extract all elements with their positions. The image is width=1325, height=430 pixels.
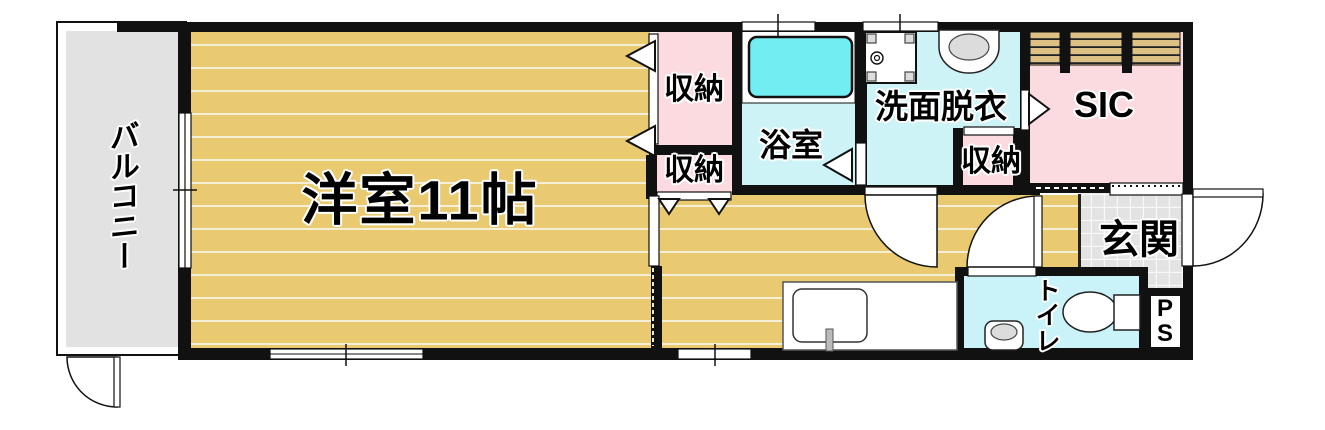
entry-door-arc bbox=[1193, 194, 1263, 266]
wall-sic-stub-2 bbox=[1122, 22, 1132, 73]
pipe-space-label: P S bbox=[1157, 296, 1173, 346]
sic-door bbox=[1021, 90, 1029, 130]
western-room-label: 洋室11帖 bbox=[301, 156, 538, 237]
pipe-space-label-s: S bbox=[1157, 320, 1173, 347]
kitchen-counter bbox=[783, 282, 957, 351]
toilet-door-leaf bbox=[1034, 196, 1042, 267]
closet-bottom-label: 収納 bbox=[664, 145, 724, 189]
washing-machine-foot bbox=[905, 34, 914, 43]
sic-shelf-1 bbox=[1030, 32, 1060, 65]
wash-basin-bowl bbox=[949, 34, 989, 60]
toilet-tank bbox=[1114, 295, 1140, 330]
entrance-label: 玄関 bbox=[1099, 207, 1179, 265]
bathtub bbox=[749, 37, 852, 97]
washroom-label: 洗面脱衣 bbox=[875, 80, 1007, 128]
washing-machine-drain bbox=[871, 52, 883, 64]
balcony-door-leaf bbox=[114, 357, 120, 407]
wall-top bbox=[117, 22, 1193, 32]
balcony-label: バルコニー bbox=[105, 119, 137, 272]
sic-shelf-2 bbox=[1070, 32, 1122, 65]
washroom-closet-door bbox=[964, 127, 1014, 135]
wall-right-upper bbox=[1183, 22, 1193, 196]
kitchen-faucet bbox=[826, 329, 833, 351]
toilet-bowl bbox=[1063, 292, 1117, 332]
entry-door-opening bbox=[1182, 194, 1194, 266]
washing-machine bbox=[865, 32, 916, 83]
balcony-door-arc bbox=[67, 357, 117, 407]
wall-closet-bottom-left bbox=[646, 155, 657, 199]
wall-closet-bath bbox=[732, 22, 742, 195]
sic-entrance-opening bbox=[1110, 183, 1183, 195]
balcony-partition-door bbox=[67, 357, 120, 407]
closet-top-label: 収納 bbox=[664, 64, 724, 108]
washroom-closet-label: 収納 bbox=[961, 136, 1021, 180]
entry-door-leaf bbox=[1193, 189, 1263, 197]
toilet-hand-basin-bowl bbox=[991, 324, 1017, 340]
bathroom-label: 浴室 bbox=[759, 120, 823, 166]
bathroom-door bbox=[856, 143, 866, 185]
sic-shelf-3 bbox=[1132, 32, 1180, 65]
partition-sliding-door bbox=[649, 196, 659, 266]
toilet-label: トイレ bbox=[1033, 276, 1059, 354]
shoe-closet-label: SIC bbox=[1074, 84, 1134, 126]
pipe-space-label-p: P bbox=[1157, 295, 1173, 322]
washing-machine-foot bbox=[867, 34, 876, 43]
washroom-door-leaf bbox=[865, 187, 937, 195]
wall-sic-stub-1 bbox=[1060, 22, 1070, 73]
floor-plan: バルコニー 洋室11帖 収納 収納 浴室 洗面脱衣 収納 SIC 玄関 トイレ … bbox=[0, 0, 1325, 430]
